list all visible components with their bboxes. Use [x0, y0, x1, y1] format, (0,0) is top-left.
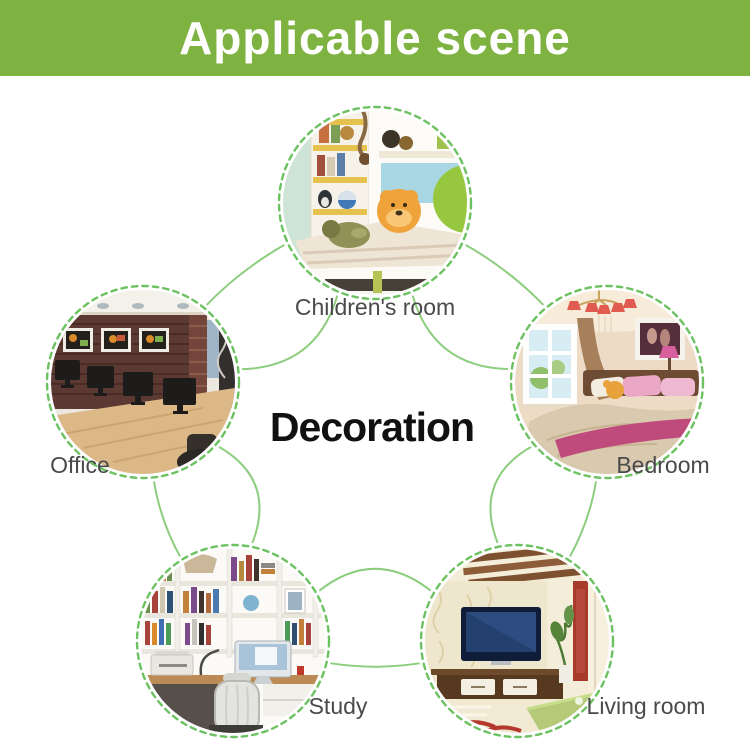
diagram-center-title: Decoration [270, 404, 474, 451]
picture-frame [139, 328, 169, 352]
label-office: Office [50, 452, 110, 478]
connector-arc [317, 569, 434, 593]
connector-arc [327, 663, 423, 667]
red-cup [297, 666, 304, 675]
scene-diagram: Decoration Children's room Office Bedroo… [0, 0, 750, 750]
label-living-room: Living room [587, 693, 706, 719]
desk-photo-frame [285, 589, 305, 613]
study-photo [133, 541, 333, 741]
page-title: Applicable scene [179, 11, 571, 65]
header-banner: Applicable scene [0, 0, 750, 76]
tv-cabinet [431, 669, 571, 699]
pooh-pillow [377, 189, 421, 233]
connector-arc [204, 243, 287, 307]
label-childrens-room: Children's room [295, 294, 455, 320]
label-study: Study [309, 693, 368, 719]
childrens-room-photo [275, 103, 501, 303]
pillows [590, 375, 695, 399]
tv [461, 607, 541, 665]
connector-arc [216, 445, 260, 546]
picture-frame [101, 328, 131, 352]
globe [243, 595, 259, 611]
connector-arc [153, 478, 181, 559]
diagram-canvas [0, 0, 750, 750]
label-bedroom: Bedroom [616, 452, 709, 478]
window [521, 324, 579, 409]
printer [151, 651, 193, 675]
connector-arc [568, 478, 596, 559]
connector-arc [490, 445, 534, 546]
window-slit [207, 320, 219, 378]
connector-arc [463, 243, 546, 307]
picture-frame [63, 328, 93, 352]
